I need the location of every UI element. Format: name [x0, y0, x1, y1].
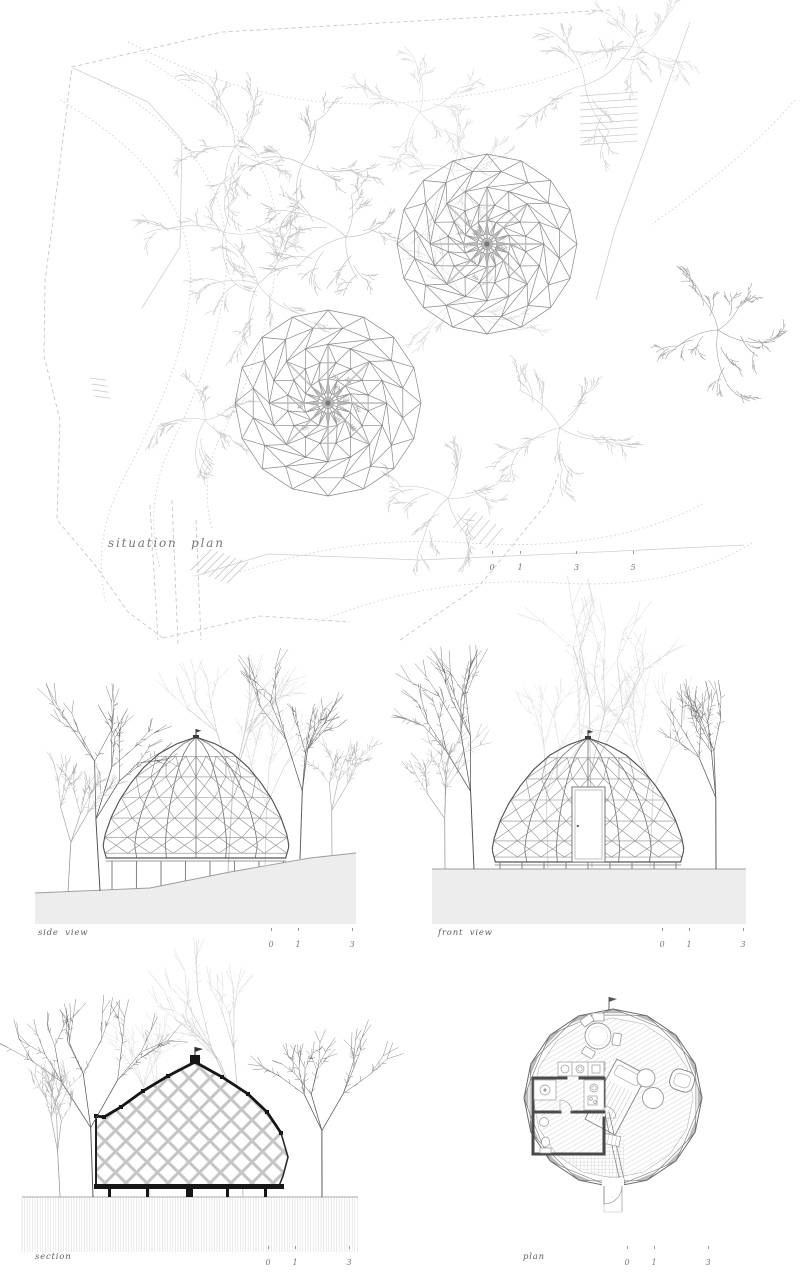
scale-mark: 3 [733, 928, 753, 951]
scale-mark: 1 [644, 1246, 664, 1269]
plan-label: plan [523, 1252, 545, 1262]
side-view-scalebar: 013 [271, 928, 451, 944]
scale-mark: 3 [342, 928, 362, 951]
scale-mark: 0 [652, 928, 672, 951]
front-view-scalebar: 013 [662, 928, 800, 944]
drawing-sheet: situation plan side view front view sect… [0, 0, 800, 1283]
plan-scalebar: 013 [627, 1246, 800, 1262]
section-label: section [35, 1252, 71, 1262]
scale-mark: 0 [258, 1246, 278, 1269]
scale-mark: 1 [679, 928, 699, 951]
scale-mark: 1 [285, 1246, 305, 1269]
situation-plan-label: situation plan [108, 536, 225, 550]
drawing-canvas [0, 0, 800, 1283]
scale-mark: 5 [623, 551, 643, 574]
scale-mark: 0 [482, 551, 502, 574]
section-scalebar: 013 [268, 1246, 448, 1262]
scale-mark: 3 [339, 1246, 359, 1269]
scale-mark: 0 [617, 1246, 637, 1269]
scale-mark: 1 [288, 928, 308, 951]
scale-mark: 0 [261, 928, 281, 951]
scale-mark: 1 [510, 551, 530, 574]
situation-plan-scalebar: 0135 [492, 551, 672, 567]
scale-mark: 3 [567, 551, 587, 574]
scale-mark: 3 [698, 1246, 718, 1269]
side-view-label: side view [38, 928, 88, 938]
